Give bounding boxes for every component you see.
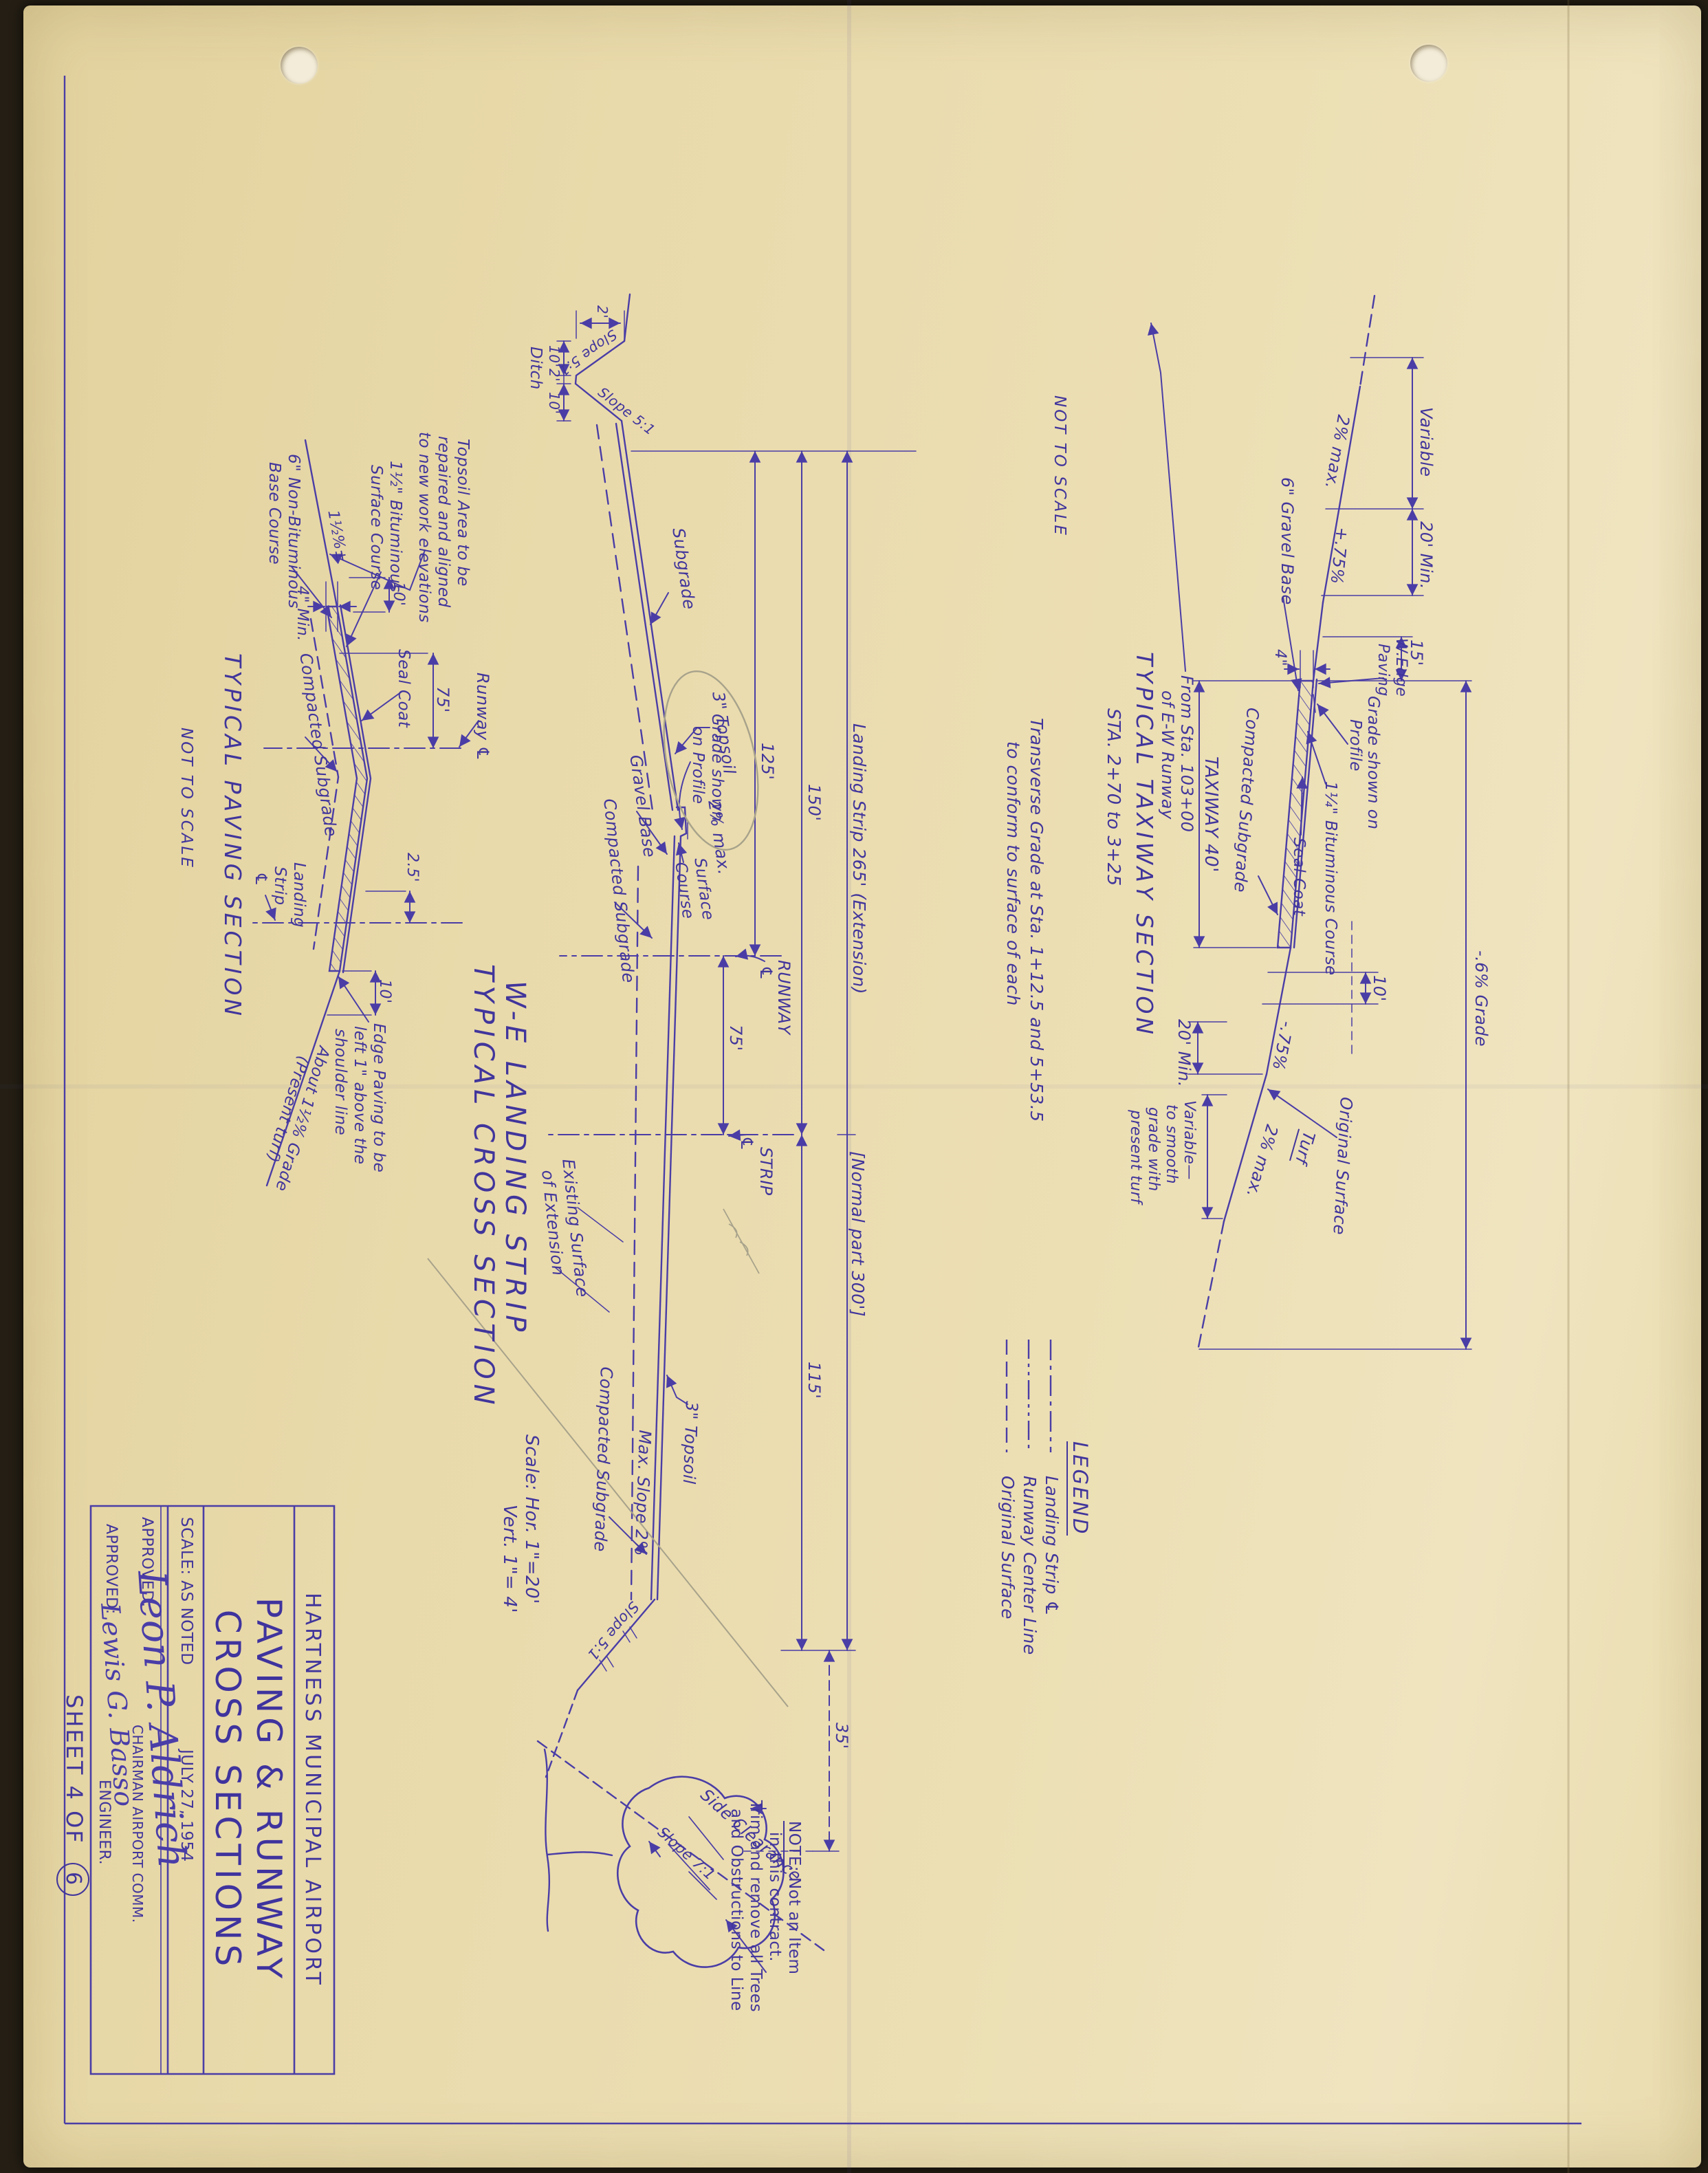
paving-runway-cl: Runway ℄ — [473, 673, 492, 761]
legend-item-runway-centerline: Runway Center Line — [1020, 1476, 1040, 1655]
sheet-title-line1: PAVING & RUNWAY — [249, 1506, 289, 2074]
taxiway-w-edge-1: W.Edge — [1392, 638, 1410, 697]
taxiway-dim-15: 15' — [1407, 640, 1426, 666]
paving-not-to-scale: NOT TO SCALE — [177, 728, 195, 869]
legend-item-landing-strip: Landing Strip ℄ — [1042, 1476, 1062, 1616]
cross-section-linework — [538, 294, 916, 1972]
scanned-blueprint-sheet: NOT TO SCALE TYPICAL TAXIWAY SECTION STA… — [0, 0, 1708, 2173]
taxiway-dim-variable: Variable — [1416, 407, 1436, 477]
paving-title: TYPICAL PAVING SECTION — [219, 653, 246, 1019]
taxiway-from-sta-1: From Sta. 103+00 — [1177, 675, 1196, 832]
cross-title-2: TYPICAL CROSS SECTION — [468, 964, 499, 1410]
taxiway-grade-profile-2: Profile — [1346, 719, 1364, 772]
cross-strip-cl-label: STRIP — [756, 1147, 776, 1196]
taxiway-variable-note-3: grade with — [1145, 1107, 1162, 1192]
paving-topsoil-note-2: repaired and aligned — [435, 436, 452, 608]
taxiway-variable-note-1: Variable— — [1181, 1100, 1198, 1180]
paving-seal-coat: Seal Coat — [395, 649, 413, 728]
sheet-number-label: SHEET 4 OF 6 — [56, 1694, 89, 1896]
cross-grade-profile-1: Grade shown — [708, 714, 726, 822]
taxiway-w-edge-2: Paving — [1375, 644, 1392, 697]
cross-note-line1: NOTE: Not an Item — [785, 1821, 803, 1974]
taxiway-variable-note-4: present turf — [1127, 1110, 1144, 1203]
cross-note-line2: in this contract. — [766, 1832, 784, 1962]
punch-hole-right — [1410, 45, 1447, 82]
taxiway-station-range: STA. 2+70 to 3+25 — [1103, 708, 1124, 886]
paving-landing-2: Strip — [271, 866, 289, 906]
sheet-number-circled: 6 — [56, 1863, 89, 1896]
cross-note-word: NOTE: — [783, 1821, 803, 1872]
paving-landing-1: Landing — [290, 862, 308, 928]
paving-dim-2-5: 2.5' — [404, 853, 421, 882]
cross-runway-cl-symbol: ℄ — [756, 965, 776, 981]
drawing-canvas: NOT TO SCALE TYPICAL TAXIWAY SECTION STA… — [0, 0, 1708, 2173]
role-engineer: ENGINEER. — [96, 1780, 113, 1865]
taxiway-dim-10: 10' — [1370, 975, 1389, 1002]
taxiway-bituminous-course: 1¼" Bituminous Course — [1322, 781, 1339, 976]
taxiway-grade-minus6: -.6% Grade — [1471, 950, 1491, 1047]
taxiway-from-sta-2: of E-W Runway — [1158, 690, 1177, 820]
approved-label-engineer: APPROVED: — [102, 1524, 120, 1615]
cross-title-1: W-E LANDING STRIP — [499, 981, 531, 1336]
taxiway-not-to-scale: NOT TO SCALE — [1051, 395, 1069, 537]
cross-dim-125: 125' — [758, 743, 777, 780]
cross-dim-150: 150' — [804, 784, 824, 821]
punch-hole-left — [281, 47, 318, 84]
taxiway-dim-40: TAXIWAY 40' — [1201, 756, 1221, 873]
paving-min-4in: 4" Min. — [294, 586, 311, 642]
cross-dim-75: 75' — [726, 1025, 745, 1051]
paving-edge-note-3: shoulder line — [331, 1029, 349, 1135]
legend-item-original-surface: Original Surface — [998, 1476, 1018, 1619]
cross-strip-cl-symbol: ℄ — [737, 1136, 756, 1151]
paving-dim-75: 75' — [433, 686, 452, 713]
cross-dim-115: 115' — [804, 1362, 824, 1399]
taxiway-variable-note-2: to smooth — [1163, 1104, 1180, 1184]
taxiway-grade-profile-1: Grade shown on — [1364, 696, 1382, 829]
taxiway-dim-20min-right: 20' Min. — [1174, 1019, 1194, 1087]
paving-dim-10-right: 10' — [376, 979, 393, 1004]
taxiway-transverse-note-1: Transverse Grade at Sta. 1+12.5 and 5+53… — [1027, 718, 1047, 1122]
paving-base-course-2: Base Course — [265, 462, 283, 565]
paving-bituminous-1: 1½" Bituminous — [386, 461, 404, 593]
cross-note-line3: Trim and remove all Trees — [747, 1800, 765, 2012]
cross-runway-cl-label: RUNWAY — [774, 960, 793, 1035]
paving-landing-cl-symbol: ℄ — [252, 872, 270, 886]
paving-dim-10-left: 10' — [390, 582, 407, 607]
paving-topsoil-note-1: Topsoil Area to be — [454, 439, 472, 587]
paving-bituminous-2: Surface Course — [367, 465, 385, 590]
taxiway-dim-4in: 4" — [1271, 649, 1289, 666]
cross-grade-profile-2: on Profile — [689, 726, 707, 804]
title-block-scale: SCALE: AS NOTED — [177, 1517, 195, 1666]
cross-dim-normal-300: [Normal part 300'] — [848, 1151, 868, 1317]
taxiway-seal-coat: Seal Coat — [1290, 838, 1308, 916]
cross-topsoil-right: 3" Topsoil — [679, 1401, 701, 1485]
legend-line-samples — [1007, 1340, 1051, 1452]
cross-scale-1: Scale: Hor. 1"=20' — [521, 1434, 542, 1604]
paving-edge-note-2: left 1" above the — [351, 1026, 369, 1165]
taxiway-transverse-note-2: to conform to surface of each — [1003, 741, 1023, 1006]
cross-scale-2: Vert. 1"= 4' — [499, 1505, 520, 1613]
taxiway-gravel-base: 6" Gravel Base — [1278, 477, 1297, 605]
paving-topsoil-note-3: to new work elevations — [415, 432, 433, 623]
cross-ditch: Ditch — [527, 347, 545, 390]
paving-edge-note-1: Edge Paving to be — [370, 1023, 388, 1172]
taxiway-dim-20min-left: 20' Min. — [1416, 521, 1436, 589]
cross-dim-35: 35' — [832, 1723, 851, 1749]
cross-ditch-depth-2ft: 2' — [594, 305, 611, 318]
legend-title: LEGEND — [1066, 1441, 1092, 1536]
taxiway-title: TYPICAL TAXIWAY SECTION — [1131, 652, 1158, 1038]
cross-dim-265: Landing Strip 265' (Extension) — [849, 723, 869, 994]
cross-note-line4: and Obstructions to Line — [727, 1809, 745, 2011]
title-block-organization: HARTNESS MUNICIPAL AIRPORT — [300, 1506, 325, 2074]
sheet-title-line2: CROSS SECTIONS — [208, 1506, 248, 2074]
cross-ditch-10ft-right: 10' — [546, 392, 562, 414]
